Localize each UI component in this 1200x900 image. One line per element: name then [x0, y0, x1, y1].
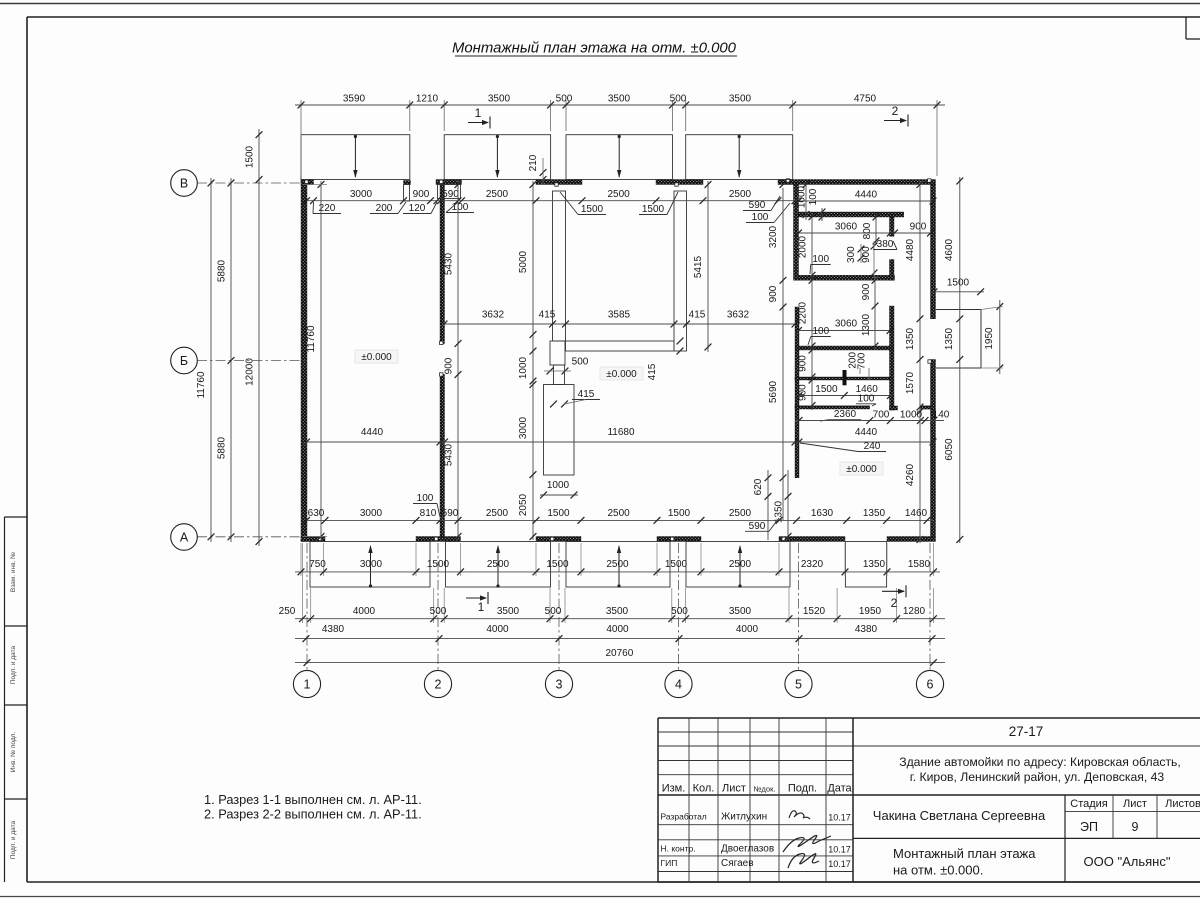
svg-text:1000: 1000 [797, 185, 808, 208]
svg-text:1500: 1500 [815, 384, 838, 395]
svg-text:3060: 3060 [835, 319, 858, 330]
svg-text:ГИП: ГИП [661, 858, 678, 868]
svg-text:3500: 3500 [497, 606, 520, 617]
svg-text:4750: 4750 [854, 93, 877, 104]
svg-text:210: 210 [528, 154, 539, 171]
svg-text:2500: 2500 [729, 559, 752, 570]
svg-text:1350: 1350 [863, 559, 886, 570]
svg-text:1950: 1950 [984, 327, 995, 350]
svg-text:4000: 4000 [353, 606, 376, 617]
svg-text:Двоеглазов: Двоеглазов [721, 844, 774, 855]
svg-text:2500: 2500 [729, 189, 752, 200]
svg-text:5430: 5430 [444, 252, 455, 275]
svg-text:100: 100 [808, 188, 819, 205]
svg-text:900: 900 [910, 222, 927, 233]
svg-text:Лист: Лист [722, 783, 746, 795]
svg-text:3500: 3500 [606, 606, 629, 617]
svg-text:3500: 3500 [729, 606, 752, 617]
svg-text:200: 200 [376, 203, 393, 214]
svg-text:9: 9 [1132, 820, 1139, 834]
svg-text:3000: 3000 [360, 559, 383, 570]
svg-text:Взам. инв. №: Взам. инв. № [10, 552, 17, 592]
svg-text:1500: 1500 [947, 277, 970, 288]
svg-text:1000: 1000 [547, 480, 570, 491]
svg-text:590: 590 [442, 508, 459, 519]
svg-text:2500: 2500 [607, 508, 630, 519]
svg-text:4000: 4000 [736, 624, 759, 635]
svg-text:700: 700 [857, 352, 868, 369]
svg-text:4600: 4600 [944, 238, 955, 261]
svg-text:3585: 3585 [608, 310, 631, 321]
svg-text:415: 415 [578, 389, 595, 400]
svg-text:415: 415 [647, 363, 658, 380]
svg-text:5000: 5000 [518, 250, 529, 273]
svg-text:27-17: 27-17 [1009, 724, 1044, 739]
svg-text:900: 900 [861, 283, 872, 300]
svg-text:на отм. ±0.000.: на отм. ±0.000. [893, 863, 983, 878]
svg-text:900: 900 [798, 355, 809, 372]
svg-text:300: 300 [846, 246, 857, 263]
svg-text:11680: 11680 [607, 427, 635, 438]
svg-text:4440: 4440 [855, 427, 878, 438]
svg-text:3500: 3500 [608, 93, 631, 104]
svg-text:Подп. и дата: Подп. и дата [10, 820, 17, 859]
svg-text:3: 3 [556, 677, 563, 691]
svg-text:10.17: 10.17 [828, 813, 851, 823]
svg-text:380: 380 [877, 239, 894, 250]
svg-text:1000: 1000 [518, 356, 529, 379]
svg-text:1520: 1520 [803, 606, 826, 617]
svg-text:2: 2 [892, 104, 899, 118]
svg-text:415: 415 [539, 310, 556, 321]
svg-text:11760: 11760 [306, 325, 317, 353]
svg-text:Лист: Лист [1123, 798, 1147, 810]
svg-text:3500: 3500 [488, 93, 511, 104]
svg-text:4260: 4260 [905, 463, 916, 486]
svg-text:590: 590 [749, 521, 766, 532]
svg-text:3632: 3632 [482, 310, 505, 321]
svg-text:590: 590 [749, 200, 766, 211]
svg-text:Дата: Дата [827, 783, 852, 795]
svg-text:500: 500 [556, 93, 573, 104]
svg-text:3000: 3000 [350, 189, 373, 200]
svg-text:2500: 2500 [607, 189, 630, 200]
svg-text:Кол.: Кол. [693, 783, 715, 795]
svg-text:5430: 5430 [444, 443, 455, 466]
svg-text:900: 900 [444, 357, 455, 374]
svg-text:100: 100 [452, 202, 469, 213]
svg-text:Разработал: Разработал [661, 812, 707, 822]
svg-text:Чакина Светлана Сергеевна: Чакина Светлана Сергеевна [873, 808, 1046, 823]
svg-text:100: 100 [417, 493, 434, 504]
svg-text:1280: 1280 [903, 606, 926, 617]
svg-text:4440: 4440 [361, 427, 384, 438]
svg-text:2360: 2360 [834, 409, 857, 420]
svg-text:3590: 3590 [343, 93, 366, 104]
svg-text:900: 900 [861, 246, 872, 263]
svg-text:2. Разрез 2-2 выполнен см. л.: 2. Разрез 2-2 выполнен см. л. АР-11. [204, 807, 422, 822]
svg-text:1580: 1580 [908, 559, 931, 570]
svg-text:4380: 4380 [322, 624, 345, 635]
svg-text:2200: 2200 [798, 301, 809, 324]
svg-text:4: 4 [675, 677, 682, 691]
svg-text:12000: 12000 [245, 358, 256, 386]
svg-text:120: 120 [409, 203, 426, 214]
svg-text:Подп. и дата: Подп. и дата [10, 645, 17, 684]
svg-text:2320: 2320 [801, 559, 824, 570]
svg-text:810: 810 [420, 508, 437, 519]
svg-text:620: 620 [753, 478, 764, 495]
svg-text:Стадия: Стадия [1070, 798, 1108, 810]
svg-text:500: 500 [430, 606, 447, 617]
svg-text:2: 2 [891, 596, 898, 610]
svg-text:2050: 2050 [518, 493, 529, 516]
svg-text:415: 415 [689, 310, 706, 321]
svg-text:900: 900 [768, 285, 779, 302]
svg-text:3200: 3200 [768, 225, 779, 248]
svg-text:В: В [180, 176, 188, 190]
svg-text:3000: 3000 [360, 508, 383, 519]
svg-text:700: 700 [873, 410, 890, 421]
svg-text:1500: 1500 [665, 559, 688, 570]
svg-text:11760: 11760 [196, 371, 207, 399]
svg-text:140: 140 [933, 410, 950, 421]
svg-text:1210: 1210 [416, 93, 439, 104]
svg-text:3632: 3632 [727, 310, 750, 321]
svg-text:Листов: Листов [1165, 798, 1200, 810]
svg-text:1500: 1500 [581, 204, 604, 215]
svg-text:2500: 2500 [486, 508, 509, 519]
svg-text:Монтажный план этажа: Монтажный план этажа [893, 846, 1036, 861]
svg-text:1500: 1500 [546, 559, 569, 570]
svg-text:А: А [180, 530, 189, 544]
svg-text:1570: 1570 [905, 371, 916, 394]
svg-text:3000: 3000 [518, 416, 529, 439]
svg-text:100: 100 [752, 212, 769, 223]
svg-text:1500: 1500 [245, 145, 256, 168]
svg-text:±0.000: ±0.000 [846, 464, 877, 475]
svg-text:г. Киров, Ленинский район, ул.: г. Киров, Ленинский район, ул. Деповская… [910, 770, 1165, 784]
svg-text:2500: 2500 [606, 559, 629, 570]
svg-text:900: 900 [413, 189, 430, 200]
svg-text:1000: 1000 [900, 410, 923, 421]
svg-text:500: 500 [670, 93, 687, 104]
svg-text:590: 590 [442, 189, 459, 200]
svg-text:4000: 4000 [486, 624, 509, 635]
svg-text:4380: 4380 [855, 624, 878, 635]
svg-text:ЭП: ЭП [1080, 820, 1098, 834]
svg-text:6: 6 [927, 677, 934, 691]
svg-text:500: 500 [671, 606, 688, 617]
svg-text:1300: 1300 [861, 313, 872, 336]
svg-text:900: 900 [798, 384, 809, 401]
svg-text:2: 2 [435, 677, 442, 691]
svg-text:100: 100 [858, 393, 875, 404]
svg-text:3500: 3500 [729, 93, 752, 104]
svg-text:750: 750 [309, 559, 326, 570]
svg-text:1350: 1350 [905, 327, 916, 350]
svg-text:Монтажный план этажа на отм. ±: Монтажный план этажа на отм. ±0.000 [452, 41, 737, 57]
svg-text:5415: 5415 [693, 255, 704, 278]
svg-text:4440: 4440 [855, 190, 878, 201]
svg-text:10.17: 10.17 [828, 845, 851, 855]
svg-text:2000: 2000 [798, 235, 809, 258]
svg-text:2500: 2500 [487, 559, 510, 570]
svg-text:1630: 1630 [811, 508, 834, 519]
svg-text:Инв. № подл.: Инв. № подл. [10, 732, 17, 773]
svg-text:№док.: №док. [754, 785, 776, 794]
svg-text:1: 1 [475, 106, 482, 120]
svg-text:Сягаев: Сягаев [721, 858, 754, 869]
svg-text:10.17: 10.17 [828, 859, 851, 869]
svg-text:3060: 3060 [835, 222, 858, 233]
svg-text:630: 630 [308, 508, 325, 519]
svg-text:4480: 4480 [905, 238, 916, 261]
svg-text:1: 1 [478, 600, 485, 614]
svg-text:1350: 1350 [863, 508, 886, 519]
svg-text:2500: 2500 [729, 508, 752, 519]
svg-text:5880: 5880 [217, 436, 228, 459]
svg-text:250: 250 [279, 606, 296, 617]
svg-text:Житлухин: Житлухин [721, 812, 767, 823]
svg-text:1: 1 [304, 677, 311, 691]
svg-text:5: 5 [795, 677, 802, 691]
svg-text:Подп.: Подп. [788, 783, 817, 795]
svg-text:2500: 2500 [486, 189, 509, 200]
svg-text:800: 800 [862, 222, 873, 239]
svg-text:1500: 1500 [668, 508, 691, 519]
svg-text:1950: 1950 [859, 606, 882, 617]
svg-text:1460: 1460 [905, 508, 928, 519]
svg-text:6050: 6050 [944, 438, 955, 461]
svg-text:1500: 1500 [427, 559, 450, 570]
svg-text:±0.000: ±0.000 [361, 352, 392, 363]
svg-text:100: 100 [812, 254, 829, 265]
svg-text:240: 240 [864, 441, 881, 452]
svg-text:Здание автомойки по адресу: Ки: Здание автомойки по адресу: Кировская об… [899, 755, 1181, 769]
svg-text:20760: 20760 [605, 648, 633, 659]
svg-text:5880: 5880 [217, 259, 228, 282]
svg-text:4000: 4000 [606, 624, 629, 635]
svg-text:Н. контр.: Н. контр. [661, 844, 696, 854]
svg-text:ООО "Альянс": ООО "Альянс" [1084, 854, 1171, 869]
svg-text:100: 100 [812, 326, 829, 337]
svg-text:1500: 1500 [642, 204, 665, 215]
svg-text:±0.000: ±0.000 [606, 369, 637, 380]
svg-text:500: 500 [572, 357, 589, 368]
svg-text:1. Разрез 1-1 выполнен см. л.: 1. Разрез 1-1 выполнен см. л. АР-11. [204, 792, 422, 807]
svg-text:Изм.: Изм. [662, 783, 686, 795]
svg-text:Б: Б [180, 354, 188, 368]
svg-text:5690: 5690 [768, 380, 779, 403]
svg-text:1500: 1500 [547, 508, 570, 519]
svg-text:1350: 1350 [944, 327, 955, 350]
svg-text:500: 500 [545, 606, 562, 617]
